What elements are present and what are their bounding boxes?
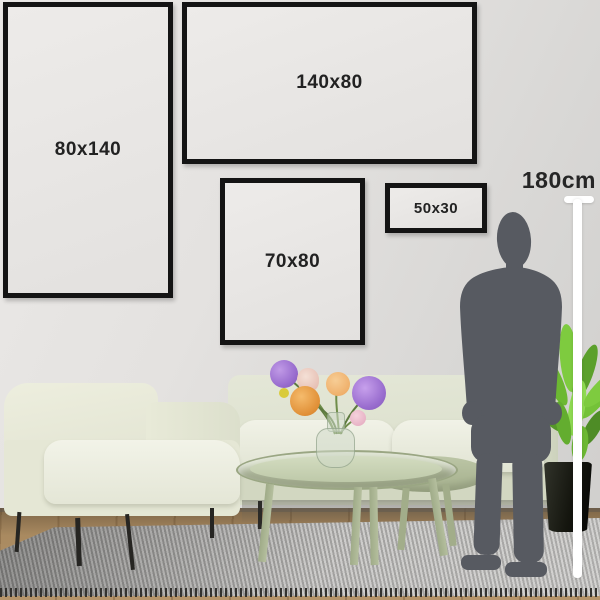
frame-70x80: 70x80	[220, 178, 365, 345]
purple-flower	[270, 360, 298, 388]
purple-flower	[352, 376, 386, 410]
size-guide-scene: 80x140 140x80 70x80 50x30 180cm	[0, 0, 600, 600]
height-marker-label: 180cm	[512, 167, 596, 194]
silhouette-torso	[460, 267, 562, 421]
silhouette-foot	[461, 555, 501, 570]
measure-line	[573, 199, 582, 578]
orange-flower	[290, 386, 320, 416]
yellow-bud	[279, 388, 289, 398]
pink-rosebud	[350, 410, 366, 426]
silhouette-foot	[505, 562, 547, 577]
frame-size-label: 70x80	[265, 251, 320, 273]
rug-fringe	[0, 588, 600, 597]
frame-140x80: 140x80	[182, 2, 477, 164]
frame-80x140: 80x140	[3, 2, 173, 298]
coffee-table-leg	[369, 487, 378, 565]
frame-size-label: 140x80	[296, 72, 362, 94]
armchair-leg	[210, 508, 214, 538]
frame-size-label: 80x140	[55, 139, 121, 161]
frame-size-label: 50x30	[414, 200, 458, 217]
silhouette-leg	[473, 453, 503, 556]
peach-flower	[326, 372, 350, 396]
glass-vase-body	[316, 428, 355, 468]
silhouette-leg	[512, 453, 544, 564]
armchair-cushion	[44, 440, 240, 504]
person-silhouette	[455, 205, 567, 577]
